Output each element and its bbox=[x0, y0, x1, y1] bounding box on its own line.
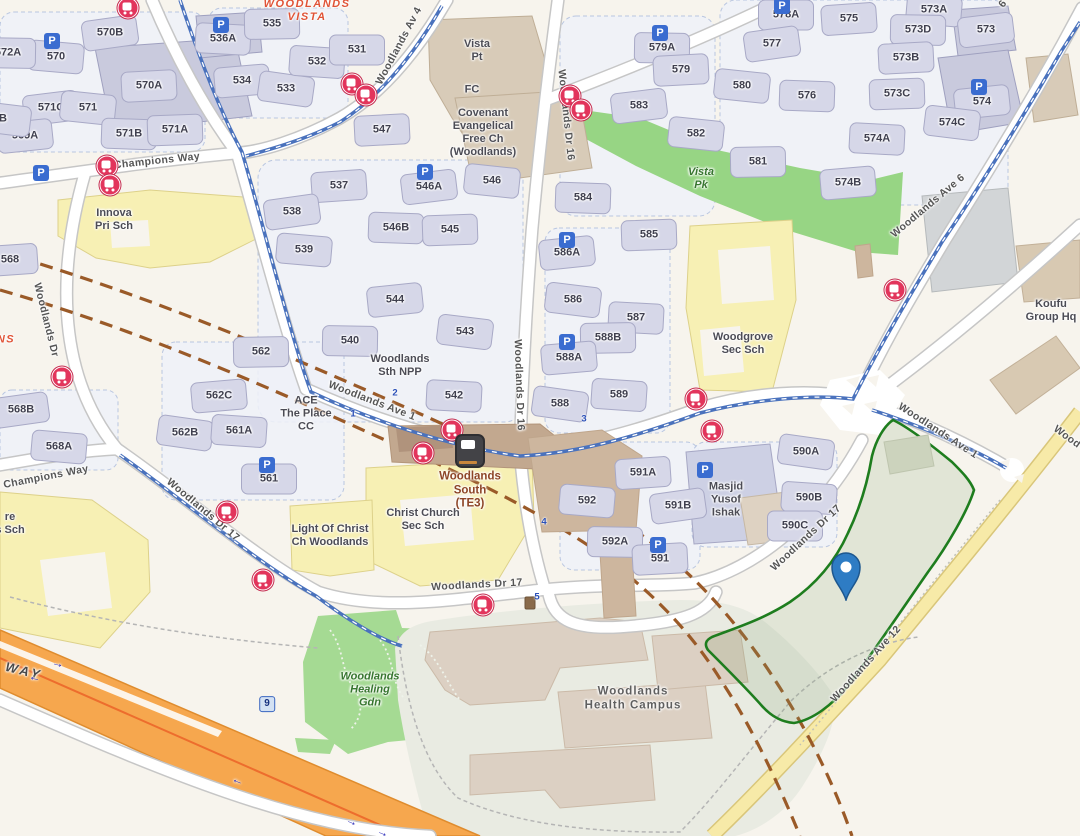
building-shape bbox=[820, 2, 878, 37]
location-pin-icon[interactable] bbox=[828, 551, 864, 601]
parking-icon[interactable]: P bbox=[559, 232, 575, 248]
building-shape bbox=[425, 379, 483, 413]
building-shape bbox=[0, 100, 33, 138]
building-shape bbox=[652, 53, 710, 87]
map-canvas[interactable]: 570B 570 572A 570A 571C 571 571B bbox=[0, 0, 1080, 836]
parking-icon[interactable]: P bbox=[697, 462, 713, 478]
building-shape bbox=[543, 281, 602, 319]
building-shape bbox=[590, 378, 648, 413]
mrt-station-icon[interactable] bbox=[455, 434, 485, 468]
parking-icon[interactable]: P bbox=[44, 33, 60, 49]
building-shape bbox=[713, 68, 772, 105]
building-shape bbox=[922, 104, 981, 142]
building-shape bbox=[421, 214, 478, 247]
building-shape bbox=[667, 116, 726, 153]
bus-stop-icon[interactable] bbox=[413, 443, 434, 464]
building-shape bbox=[275, 232, 333, 268]
building-shape bbox=[848, 122, 906, 156]
bus-stop-icon[interactable] bbox=[253, 570, 274, 591]
building-shape bbox=[620, 219, 677, 252]
bus-stop-icon[interactable] bbox=[217, 502, 238, 523]
parking-icon[interactable]: P bbox=[213, 17, 229, 33]
building-shape bbox=[0, 243, 39, 278]
building-shape bbox=[244, 8, 301, 40]
parking-icon[interactable]: P bbox=[559, 334, 575, 350]
bus-stop-icon[interactable] bbox=[100, 175, 121, 196]
bus-stop-icon[interactable] bbox=[356, 85, 377, 106]
building-shape bbox=[146, 114, 203, 147]
building-shape bbox=[329, 35, 385, 66]
building-shape bbox=[0, 37, 36, 69]
building-shape bbox=[190, 378, 248, 414]
building-shape bbox=[554, 182, 611, 215]
bus-stop-icon[interactable] bbox=[702, 421, 723, 442]
parking-icon[interactable]: P bbox=[650, 537, 666, 553]
bus-stop-icon[interactable] bbox=[686, 389, 707, 410]
building-shape bbox=[463, 163, 522, 200]
building-shape bbox=[322, 325, 379, 357]
bus-stop-icon[interactable] bbox=[885, 280, 906, 301]
building-shape bbox=[435, 313, 494, 351]
parking-icon[interactable]: P bbox=[33, 165, 49, 181]
building-shape bbox=[819, 165, 877, 201]
building-shape bbox=[614, 456, 672, 491]
building-shape bbox=[778, 80, 835, 113]
building-shape bbox=[877, 41, 935, 75]
bus-stop-icon[interactable] bbox=[52, 367, 73, 388]
building-shape bbox=[210, 414, 268, 449]
parking-icon[interactable]: P bbox=[417, 164, 433, 180]
building-shape bbox=[120, 69, 178, 103]
building-shape bbox=[366, 282, 425, 319]
building-shape bbox=[30, 429, 88, 465]
parking-icon[interactable]: P bbox=[774, 0, 790, 14]
parking-icon[interactable]: P bbox=[259, 457, 275, 473]
building-shape bbox=[367, 212, 424, 245]
building-shape bbox=[767, 511, 823, 542]
building-shape bbox=[730, 146, 787, 178]
poi-brown-icon[interactable] bbox=[525, 597, 536, 610]
building-shape bbox=[353, 113, 411, 147]
bus-stop-icon[interactable] bbox=[473, 595, 494, 616]
building-shape bbox=[310, 169, 368, 204]
train-base bbox=[459, 461, 477, 464]
bus-stop-icon[interactable] bbox=[571, 100, 592, 121]
train-window bbox=[461, 440, 475, 449]
bus-stop-icon[interactable] bbox=[97, 156, 118, 177]
parking-icon[interactable]: P bbox=[971, 79, 987, 95]
parking-icon[interactable]: P bbox=[652, 25, 668, 41]
building-shape bbox=[868, 78, 925, 111]
building-shape bbox=[233, 336, 290, 368]
building-shape bbox=[558, 483, 616, 519]
